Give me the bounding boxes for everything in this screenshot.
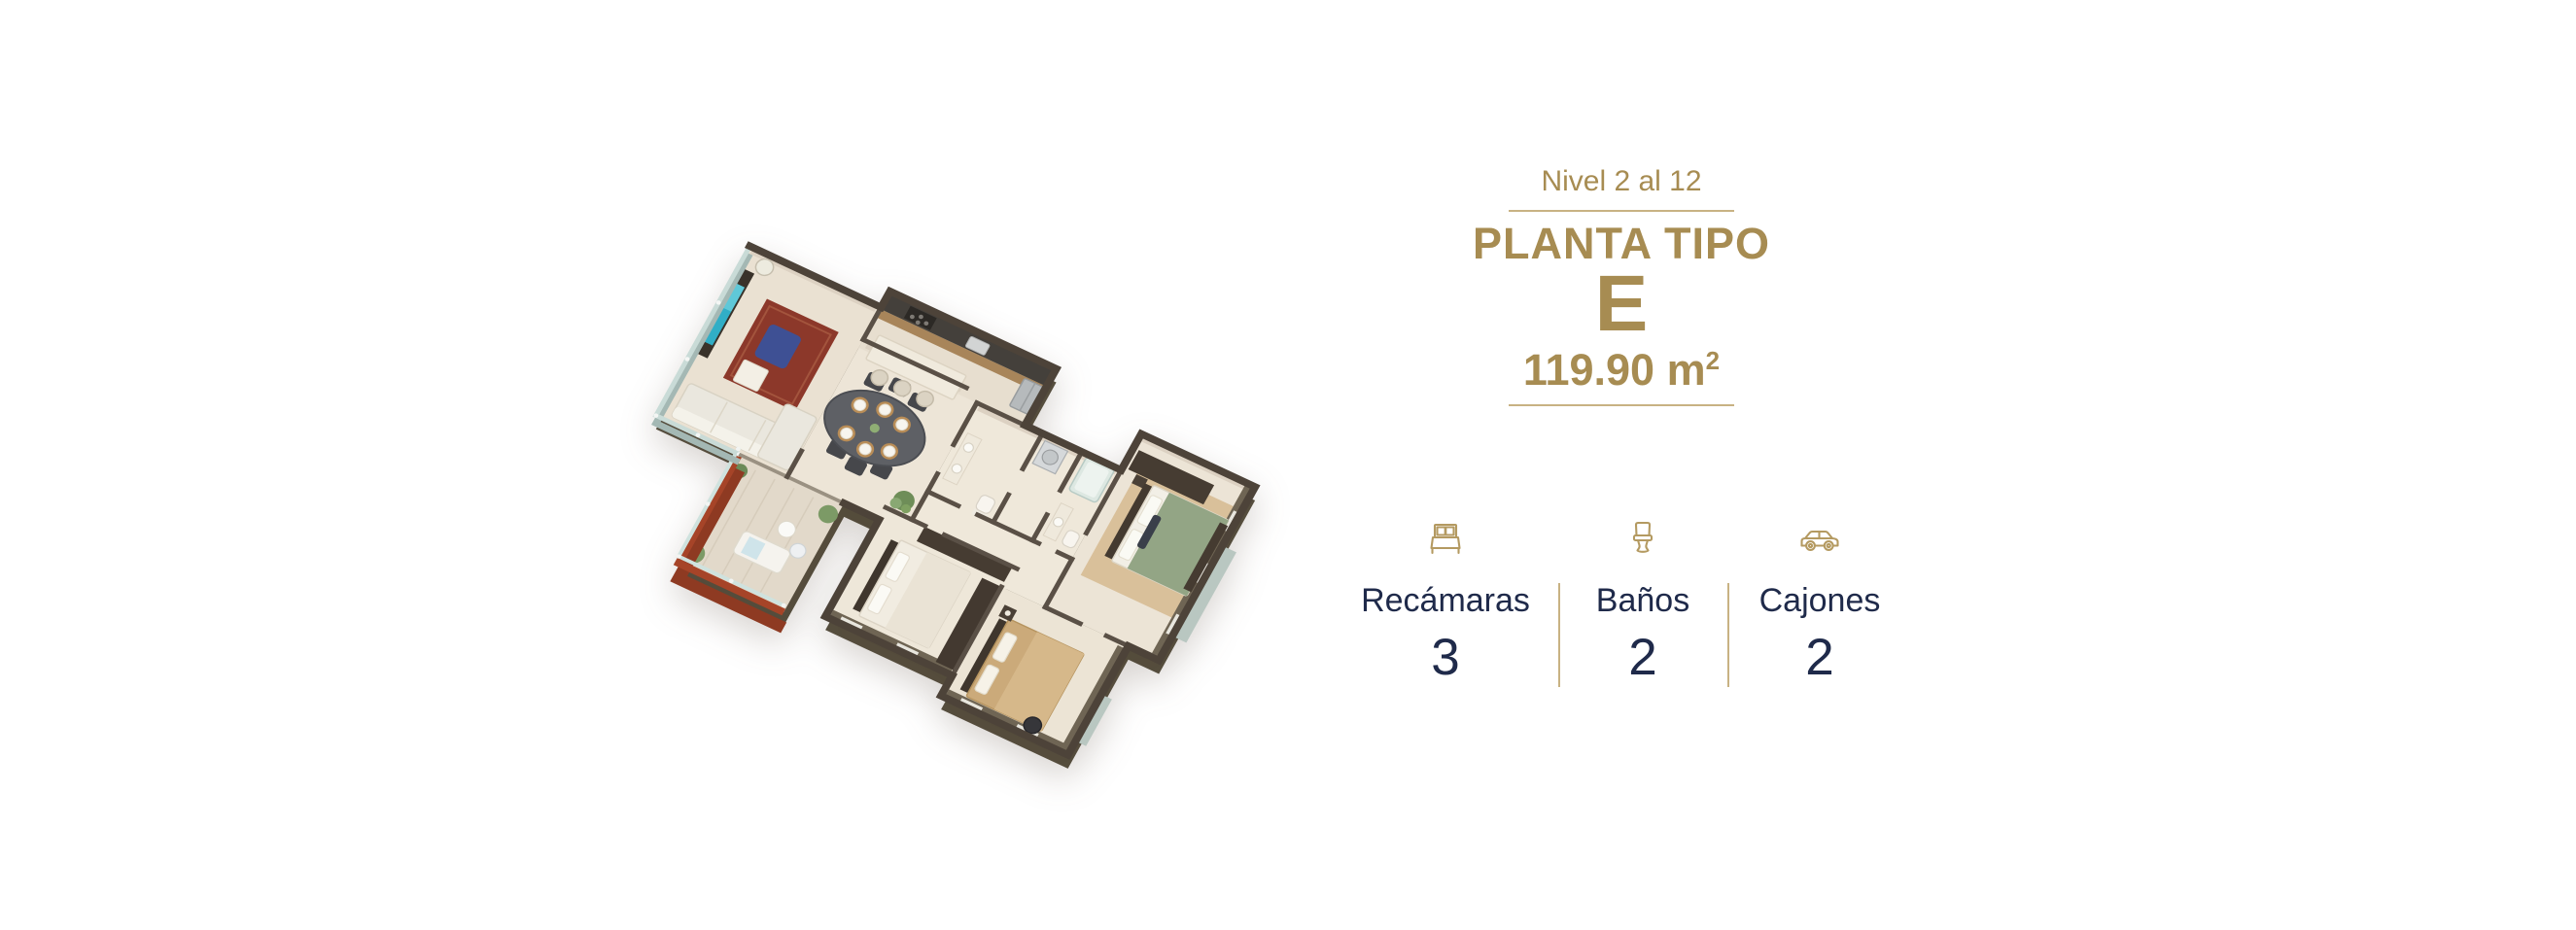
floorplan [612, 219, 1273, 782]
toilet-icon [1619, 518, 1666, 565]
floorplan-3d-render [612, 219, 1273, 782]
unit-header: Nivel 2 al 12 PLANTA TIPO E 119.90 m2 [1470, 165, 1773, 406]
car-icon [1796, 518, 1843, 565]
stat-label: Cajones [1759, 584, 1881, 617]
area-value: 119.90 m [1523, 345, 1706, 395]
stat-recamaras: Recámaras 3 [1339, 518, 1552, 683]
stat-value: 3 [1431, 632, 1459, 683]
stat-value: 2 [1805, 632, 1833, 683]
unit-area: 119.90 m2 [1470, 348, 1773, 392]
stat-banos: Baños 2 [1555, 518, 1730, 683]
unit-type-letter: E [1470, 270, 1773, 338]
top-divider-line [1509, 210, 1734, 212]
stats-divider [1727, 583, 1729, 687]
stat-label: Baños [1596, 584, 1689, 617]
bed-icon [1422, 518, 1469, 565]
page: Nivel 2 al 12 PLANTA TIPO E 119.90 m2 Re… [0, 0, 2576, 930]
bottom-divider-line [1509, 404, 1734, 406]
area-superscript: 2 [1706, 346, 1720, 375]
stat-value: 2 [1628, 632, 1656, 683]
stat-label: Recámaras [1361, 584, 1530, 617]
floorplan-iso-group [612, 229, 1273, 780]
stat-cajones: Cajones 2 [1732, 518, 1907, 683]
level-label: Nivel 2 al 12 [1470, 165, 1773, 197]
